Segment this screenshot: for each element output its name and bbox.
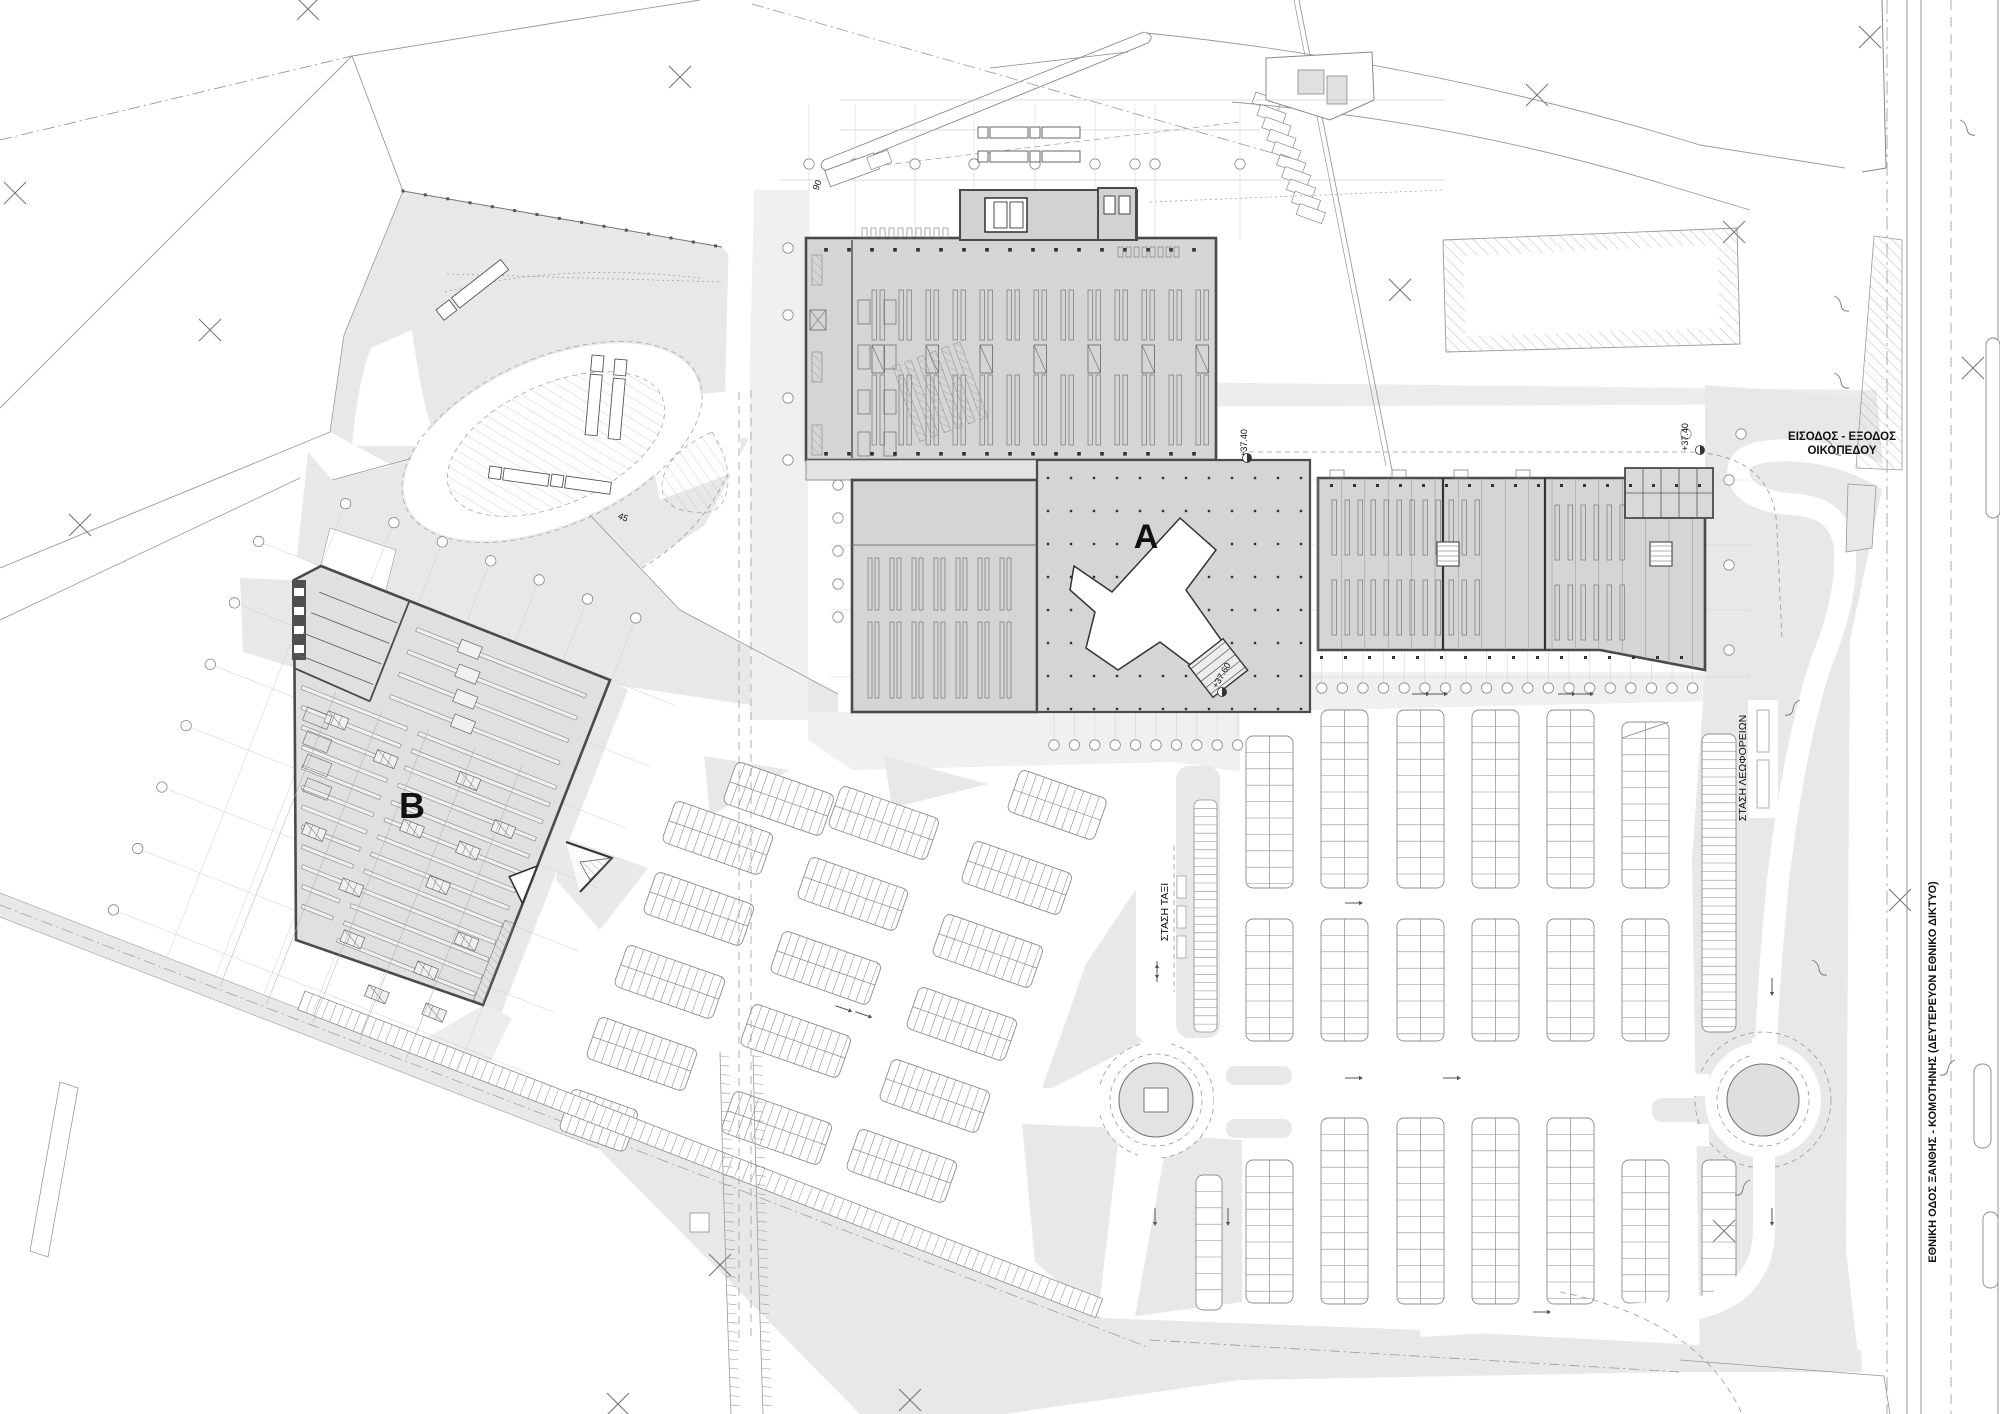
svg-text:ΣΤΑΣΗ ΤΑΞΙ: ΣΤΑΣΗ ΤΑΞΙ	[1159, 883, 1171, 941]
svg-text:+37.40: +37.40	[1239, 429, 1249, 457]
svg-text:ΣΤΑΣΗ ΛΕΩΦΟΡΕΙΩΝ: ΣΤΑΣΗ ΛΕΩΦΟΡΕΙΩΝ	[1737, 715, 1749, 821]
svg-text:+37.40: +37.40	[1680, 423, 1690, 451]
svg-text:ΕΘΝΙΚΗ ΟΔΟΣ ΞΑΝΘΗΣ - ΚΟΜΟΤΗΝΗΣ: ΕΘΝΙΚΗ ΟΔΟΣ ΞΑΝΘΗΣ - ΚΟΜΟΤΗΝΗΣ (ΔΕΥΤΕΡΕΥ…	[1927, 881, 1939, 1263]
svg-text:ΕΙΣΟΔΟΣ - ΕΞΟΔΟΣ: ΕΙΣΟΔΟΣ - ΕΞΟΔΟΣ	[1788, 431, 1896, 443]
svg-text:A: A	[1134, 518, 1159, 556]
svg-text:ΟΙΚΟΠΕΔΟΥ: ΟΙΚΟΠΕΔΟΥ	[1807, 445, 1876, 457]
svg-text:B: B	[399, 785, 425, 826]
